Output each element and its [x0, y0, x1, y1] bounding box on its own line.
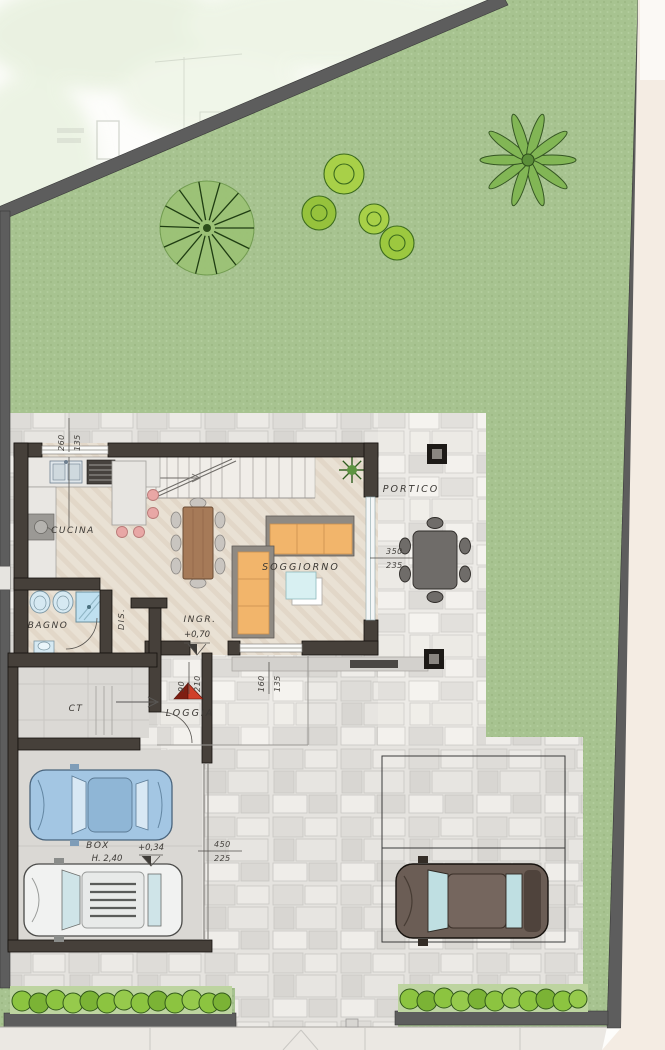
hedge-left: [10, 986, 232, 1014]
room-label-cucina: CUCINA: [51, 526, 95, 536]
dim-value: 135: [273, 675, 282, 692]
box-height-note: H. 2,40: [92, 854, 123, 864]
dim-value: 160: [257, 675, 266, 692]
room-label-dis: DIS.: [117, 608, 126, 630]
dim-value: 235: [386, 561, 403, 570]
portico-pillar: [424, 649, 444, 669]
level-value: +0,70: [184, 630, 210, 640]
outdoor-table: [413, 531, 457, 589]
prep-sink: [28, 514, 54, 540]
cooktop-grill: [87, 460, 115, 484]
car-blue: [30, 764, 172, 846]
pedestrian-gate: [0, 566, 10, 590]
car-suv-white: [24, 858, 182, 942]
dim-value: 210: [193, 675, 202, 692]
staircase: [145, 457, 315, 498]
floor-plan-canvas: 260 135 90 210 160 135 350 235 450 225 +…: [0, 0, 665, 1050]
kitchen-sink: [50, 460, 82, 483]
room-label-box: BOX: [86, 841, 110, 851]
dim-value: 350: [386, 547, 403, 556]
room-label-bagno: BAGNO: [28, 621, 69, 631]
toilet: [34, 641, 54, 653]
outside-right-top: [640, 0, 665, 80]
indoor-plant: [339, 457, 365, 483]
room-label-loggia: LOGGIA: [166, 708, 215, 719]
living-glass-door: [366, 497, 375, 620]
living-window: [240, 644, 302, 652]
dim-value: 450: [214, 840, 231, 849]
dim-value: 135: [73, 434, 82, 451]
room-label-portico: PORTICO: [383, 484, 440, 495]
shower: [76, 592, 102, 622]
room-label-ct: CT: [69, 704, 84, 714]
room-label-ingresso: INGR.: [184, 615, 217, 625]
floor-plan-page: 260 135 90 210 160 135 350 235 450 225 +…: [0, 0, 665, 1050]
terrace-step: [232, 657, 428, 671]
tree-large: [160, 181, 254, 275]
dim-value: 260: [57, 434, 66, 451]
room-label-soggiorno: SOGGIORNO: [262, 562, 340, 573]
dim-value: 225: [214, 854, 231, 863]
level-value: +0,34: [138, 843, 164, 853]
dim-value: 90: [177, 681, 186, 692]
portico-pillar: [427, 444, 447, 464]
hedge-right: [398, 984, 588, 1012]
dining-table: [183, 507, 213, 579]
car-dark: [396, 856, 548, 946]
